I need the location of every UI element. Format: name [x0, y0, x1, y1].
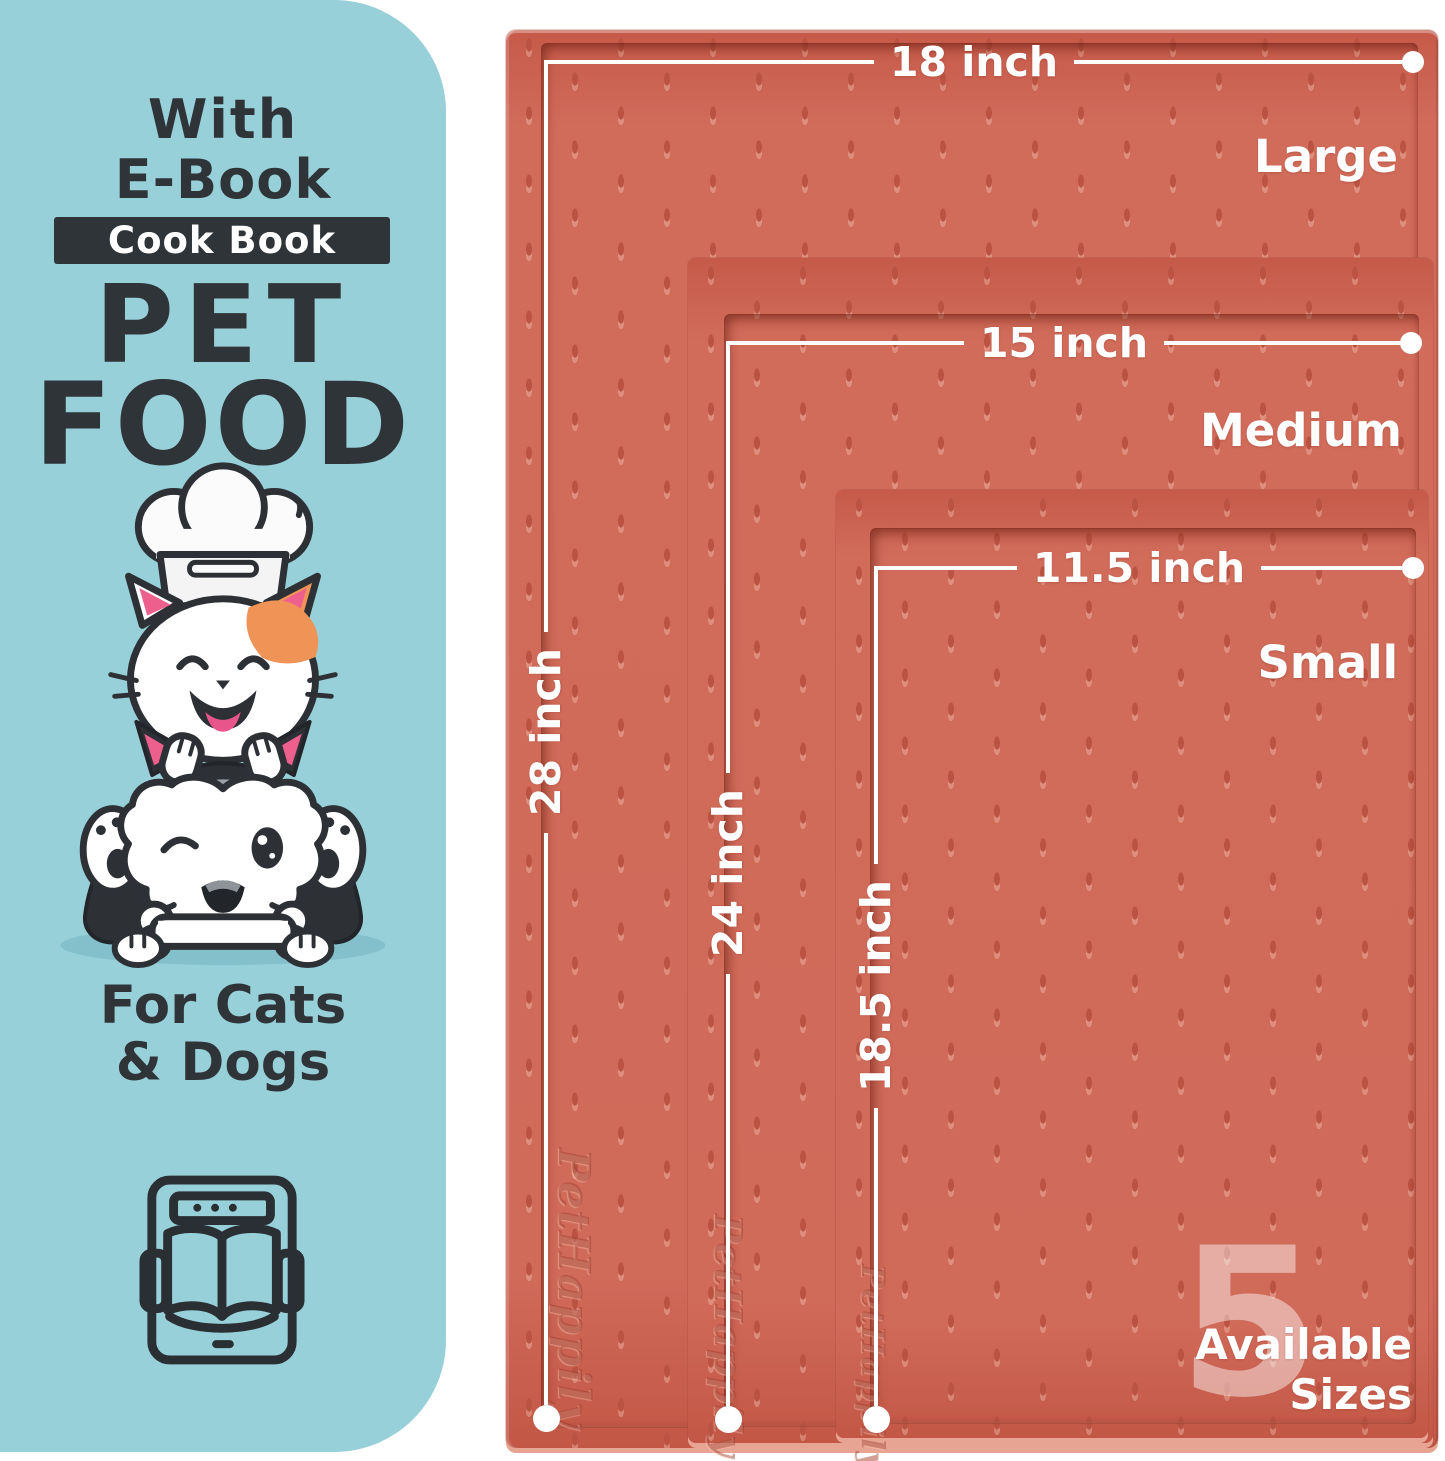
size-label-small: Small: [1240, 636, 1398, 689]
dimension-endpoint-dot: [715, 1406, 742, 1433]
size-label-large: Large: [1250, 130, 1398, 183]
with-text: With: [0, 88, 446, 151]
available-sizes-text: Available Sizes: [1195, 1320, 1412, 1419]
dimension-width-medium: 15 inch: [728, 319, 1422, 367]
dimension-width-small: 11.5 inch: [876, 544, 1424, 592]
product-infographic: With E-Book Cook Book PET FOOD: [0, 0, 1445, 1461]
sizes-line: Sizes: [1195, 1370, 1412, 1420]
left-panel: With E-Book Cook Book PET FOOD: [0, 0, 446, 1452]
dimension-line: [544, 60, 548, 632]
dimension-label: 18.5 inch: [852, 880, 900, 1092]
cookbook-badge: Cook Book: [54, 217, 390, 264]
dimension-endpoint-dot: [863, 1406, 890, 1433]
dimension-line: [1261, 566, 1402, 570]
chef-hat-icon: [138, 466, 309, 606]
dimension-label: 28 inch: [522, 648, 570, 816]
dimension-endpoint-dot: [1400, 332, 1422, 354]
dimension-endpoint-dot: [533, 1405, 560, 1432]
mat-small: [836, 490, 1428, 1438]
dimension-endpoint-dot: [1402, 557, 1424, 579]
dimension-width-large: 18 inch: [546, 38, 1424, 86]
cookbook-badge-label: Cook Book: [108, 219, 336, 262]
dimension-label: 15 inch: [980, 319, 1148, 367]
dimension-endpoint-dot: [1402, 51, 1424, 73]
dimension-height-small: 18.5 inch: [852, 566, 900, 1433]
ebook-icon: [138, 1166, 306, 1374]
available-line: Available: [1195, 1320, 1412, 1370]
dimension-height-medium: 24 inch: [704, 341, 752, 1433]
dimension-line: [1074, 60, 1402, 64]
dimension-line: [726, 341, 730, 773]
dimension-line: [1164, 341, 1400, 345]
dimension-line: [546, 60, 874, 64]
ebook-text: E-Book: [0, 148, 446, 211]
cat-dog-chef-illustration: [32, 458, 414, 970]
for-cats-text: For Cats: [0, 975, 446, 1036]
dimension-label: 11.5 inch: [1033, 544, 1245, 592]
dimension-line: [726, 974, 730, 1406]
dimension-line: [728, 341, 964, 345]
size-label-medium: Medium: [1200, 404, 1396, 457]
dimension-label: 18 inch: [890, 38, 1058, 86]
dimension-line: [544, 833, 548, 1405]
dimension-label: 24 inch: [704, 789, 752, 957]
and-dogs-text: & Dogs: [0, 1032, 446, 1093]
dimension-line: [874, 1108, 878, 1406]
dimension-line: [874, 566, 878, 864]
dimension-height-large: 28 inch: [522, 60, 570, 1432]
